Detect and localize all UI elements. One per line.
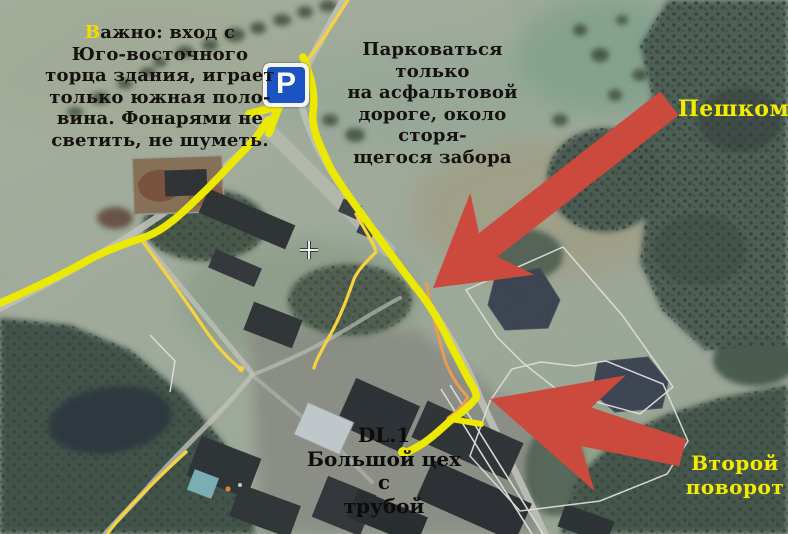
destination-line: трубой [302, 495, 466, 519]
important-note-line: Важно: вход с [20, 22, 300, 44]
destination-line: DL.1 [302, 424, 466, 448]
destination-line: Большой цех с [302, 448, 466, 495]
second-turn-line: поворот [677, 475, 788, 499]
important-note-line: светить, не шуметь. [20, 130, 300, 152]
important-note: Важно: вход с Юго-восточного торца здани… [20, 22, 300, 151]
parking-note-line: Парковаться только [330, 39, 535, 82]
second-turn-label: Второй поворот [677, 451, 788, 499]
important-note-line: торца здания, играет [20, 65, 300, 87]
satellite-map: P Важно: вход с Юго-восточного торца зда… [0, 0, 788, 534]
important-note-line: Юго-восточного [20, 44, 300, 66]
second-turn-line: Второй [677, 451, 788, 475]
walk-label: Пешком [678, 96, 778, 122]
important-note-line: вина. Фонарями не [20, 108, 300, 130]
parking-note-line: щегося забора [330, 147, 535, 169]
parking-note-line: дороге, около сторя- [330, 104, 535, 147]
important-note-line: только южная поло- [20, 87, 300, 109]
highlighted-first-letter: В [85, 22, 100, 43]
destination-label: DL.1 Большой цех с трубой [302, 424, 466, 518]
parking-note-line: на асфальтовой [330, 82, 535, 104]
parking-note: Парковаться только на асфальтовой дороге… [330, 39, 535, 168]
